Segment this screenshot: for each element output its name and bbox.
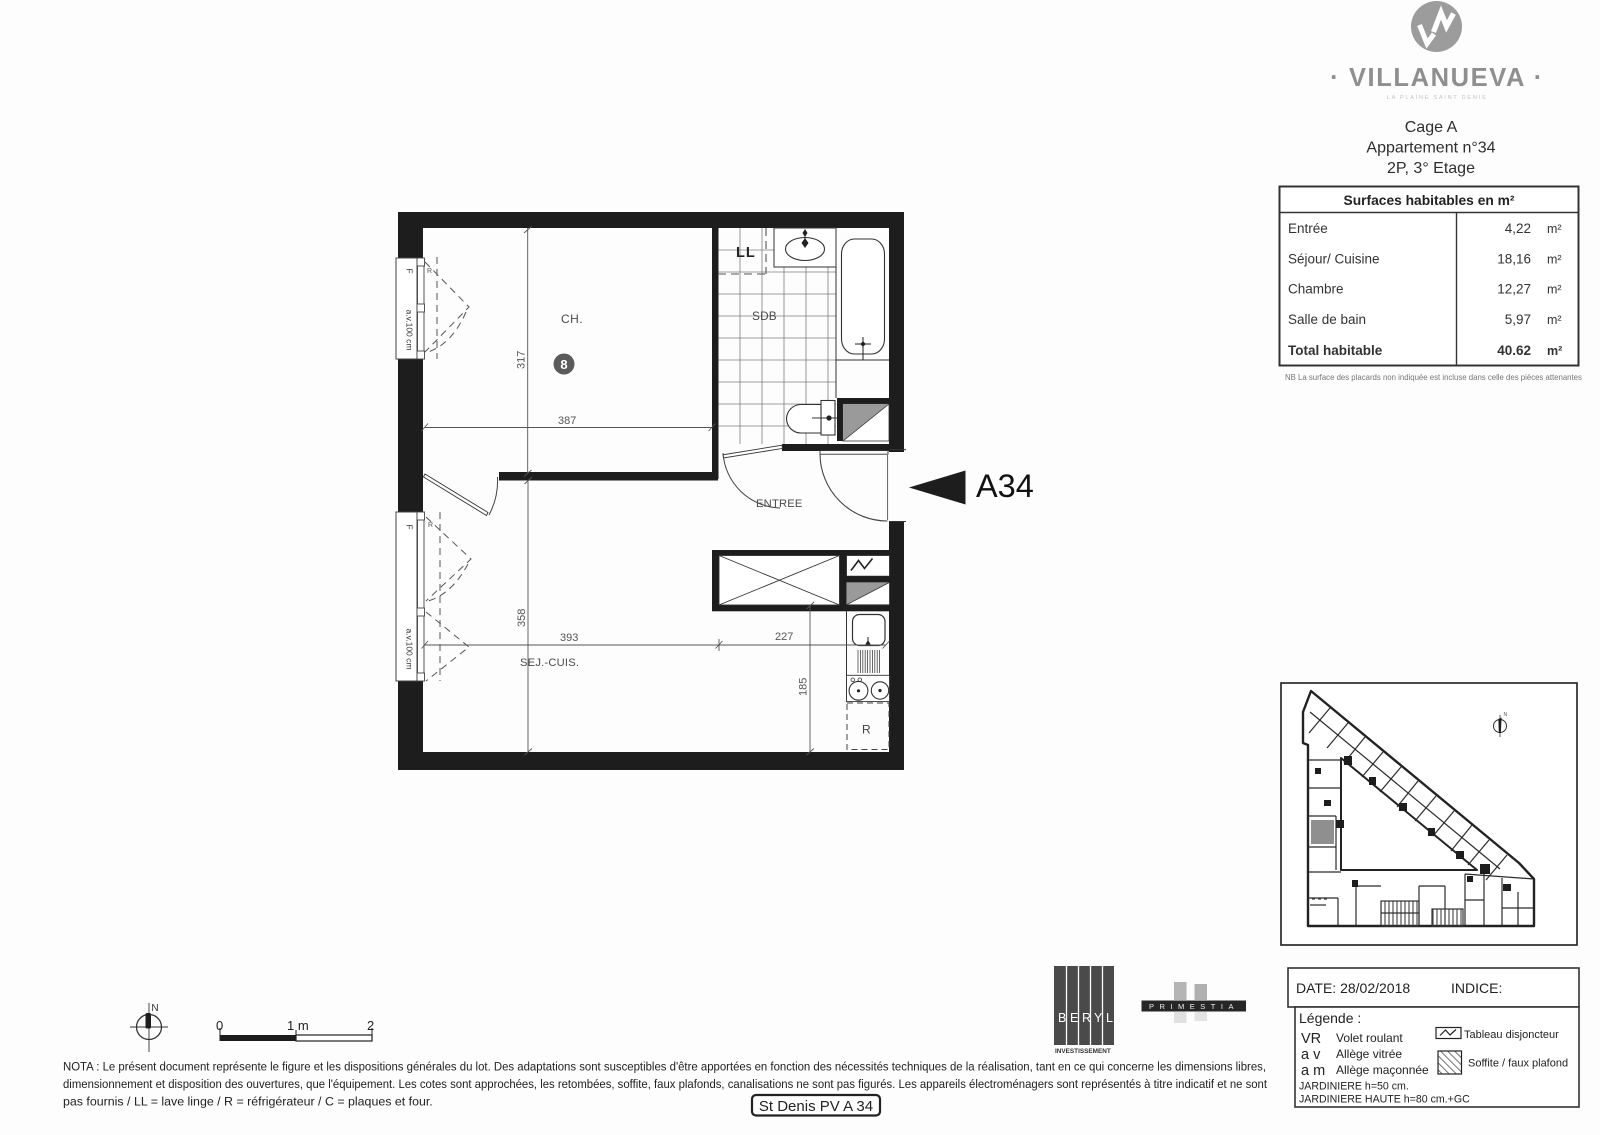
svg-text:0: 0 bbox=[216, 1018, 223, 1033]
svg-text:Surfaces habitables en m²: Surfaces habitables en m² bbox=[1344, 193, 1515, 208]
svg-text:Entrée: Entrée bbox=[1288, 221, 1328, 236]
svg-text:A34: A34 bbox=[976, 468, 1034, 504]
svg-text:a m: a m bbox=[1301, 1063, 1325, 1079]
svg-text:2P, 3° Etage: 2P, 3° Etage bbox=[1387, 160, 1475, 177]
svg-text:INVESTISSEMENT: INVESTISSEMENT bbox=[1055, 1048, 1111, 1055]
svg-text:Total habitable: Total habitable bbox=[1288, 343, 1383, 358]
svg-text:4,22: 4,22 bbox=[1505, 221, 1531, 236]
svg-text:185: 185 bbox=[798, 678, 810, 696]
svg-text:SDB: SDB bbox=[752, 309, 777, 323]
svg-text:Allège vitrée: Allège vitrée bbox=[1336, 1047, 1402, 1061]
svg-text:VR: VR bbox=[1301, 1031, 1321, 1047]
svg-text:SEJ.-CUIS.: SEJ.-CUIS. bbox=[520, 657, 579, 669]
svg-text:40.62: 40.62 bbox=[1497, 343, 1531, 358]
svg-text:m²: m² bbox=[1547, 344, 1562, 358]
svg-text:a.v.100 cm: a.v.100 cm bbox=[405, 310, 415, 351]
svg-text:PRIMESTIA: PRIMESTIA bbox=[1149, 1002, 1239, 1011]
svg-text:a.v.100 cm: a.v.100 cm bbox=[405, 629, 415, 670]
svg-text:5,97: 5,97 bbox=[1505, 312, 1531, 327]
svg-text:F: F bbox=[405, 268, 415, 273]
svg-text:pas fournis / LL = lave linge: pas fournis / LL = lave linge / R = réfr… bbox=[63, 1095, 433, 1109]
svg-text:2: 2 bbox=[367, 1018, 374, 1033]
svg-text:Séjour/ Cuisine: Séjour/ Cuisine bbox=[1288, 252, 1380, 267]
svg-text:m²: m² bbox=[1547, 283, 1562, 297]
svg-text:358: 358 bbox=[516, 609, 528, 627]
svg-text:Allège maçonnée: Allège maçonnée bbox=[1336, 1063, 1429, 1077]
svg-text:· VILLANUEVA ·: · VILLANUEVA · bbox=[1330, 64, 1544, 92]
svg-text:Salle de bain: Salle de bain bbox=[1288, 312, 1366, 327]
svg-text:1 m: 1 m bbox=[287, 1018, 309, 1033]
svg-text:NB La surface des placards n: NB La surface des placards non indiquée … bbox=[1285, 373, 1582, 382]
svg-text:317: 317 bbox=[516, 351, 528, 369]
svg-text:dimensionnement et disposition: dimensionnement et disposition des ouver… bbox=[63, 1077, 1268, 1091]
svg-text:F: F bbox=[405, 524, 415, 529]
svg-text:Soffite / faux plafond: Soffite / faux plafond bbox=[1468, 1058, 1568, 1070]
svg-text:8: 8 bbox=[560, 357, 567, 372]
svg-text:R: R bbox=[427, 268, 432, 275]
svg-text:m²: m² bbox=[1547, 313, 1562, 327]
svg-text:R: R bbox=[862, 723, 871, 737]
svg-text:LL: LL bbox=[736, 245, 756, 261]
svg-text:R: R bbox=[428, 522, 433, 529]
svg-text:Légende :: Légende : bbox=[1299, 1010, 1361, 1026]
svg-text:Volet roulant: Volet roulant bbox=[1336, 1031, 1403, 1045]
svg-text:18,16: 18,16 bbox=[1497, 252, 1531, 267]
svg-text:a v: a v bbox=[1301, 1047, 1321, 1063]
svg-text:Tableau disjoncteur: Tableau disjoncteur bbox=[1464, 1029, 1559, 1041]
svg-text:Appartement n°34: Appartement n°34 bbox=[1366, 140, 1495, 157]
svg-text:NOTA : Le présent document rep: NOTA : Le présent document représente le… bbox=[63, 1060, 1266, 1074]
svg-text:INDICE:: INDICE: bbox=[1451, 980, 1502, 996]
svg-text:N: N bbox=[151, 1003, 158, 1014]
svg-text:JARDINIERE h=50 cm.: JARDINIERE h=50 cm. bbox=[1299, 1081, 1409, 1093]
svg-text:ENTREE: ENTREE bbox=[756, 498, 803, 510]
svg-text:CH.: CH. bbox=[561, 312, 583, 326]
svg-text:JARDINIERE HAUTE h=80 cm.+GC: JARDINIERE HAUTE h=80 cm.+GC bbox=[1299, 1094, 1470, 1106]
svg-text:12,27: 12,27 bbox=[1497, 282, 1531, 297]
svg-text:387: 387 bbox=[558, 415, 576, 427]
svg-text:LA PLAINE SAINT DENIS: LA PLAINE SAINT DENIS bbox=[1387, 95, 1488, 101]
svg-text:Chambre: Chambre bbox=[1288, 282, 1344, 297]
svg-text:DATE: 28/02/2018: DATE: 28/02/2018 bbox=[1296, 980, 1410, 996]
svg-text:N: N bbox=[1504, 712, 1508, 718]
svg-text:227: 227 bbox=[775, 631, 793, 643]
svg-text:Cage A: Cage A bbox=[1405, 119, 1458, 136]
svg-text:St Denis PV A 34: St Denis PV A 34 bbox=[759, 1098, 873, 1115]
svg-text:m²: m² bbox=[1547, 253, 1562, 267]
svg-text:393: 393 bbox=[560, 632, 578, 644]
svg-text:m²: m² bbox=[1547, 222, 1562, 236]
